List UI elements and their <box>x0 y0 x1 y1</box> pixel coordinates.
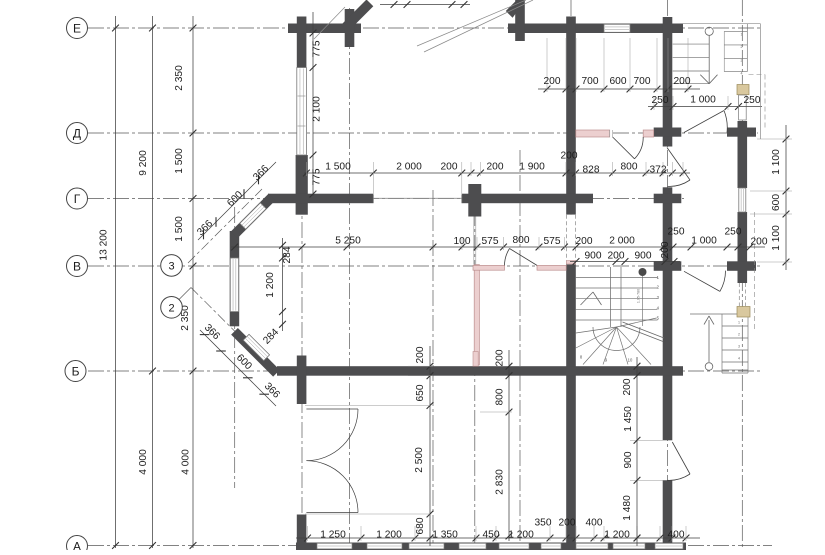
svg-text:1 500: 1 500 <box>174 216 185 242</box>
svg-text:200: 200 <box>608 250 625 261</box>
svg-text:3: 3 <box>741 59 743 63</box>
svg-text:2: 2 <box>168 302 174 314</box>
svg-text:1: 1 <box>738 321 740 325</box>
svg-text:372: 372 <box>650 165 667 176</box>
svg-text:10: 10 <box>628 358 633 363</box>
svg-text:600: 600 <box>610 76 627 87</box>
svg-text:200: 200 <box>415 346 426 363</box>
svg-text:200: 200 <box>674 76 691 87</box>
svg-text:1 000: 1 000 <box>691 236 717 247</box>
svg-text:3: 3 <box>168 260 174 272</box>
svg-text:250: 250 <box>668 227 685 238</box>
svg-text:600: 600 <box>771 194 782 211</box>
svg-text:1 100: 1 100 <box>771 149 782 175</box>
svg-text:800: 800 <box>495 388 506 405</box>
svg-text:13 200: 13 200 <box>99 229 110 260</box>
svg-text:2 000: 2 000 <box>396 162 422 173</box>
svg-text:400: 400 <box>668 530 685 541</box>
svg-text:1 250: 1 250 <box>320 530 346 541</box>
svg-text:2: 2 <box>741 45 743 49</box>
svg-text:200: 200 <box>660 241 671 258</box>
svg-text:2 500: 2 500 <box>414 447 425 473</box>
svg-text:800: 800 <box>621 162 638 173</box>
svg-text:250: 250 <box>744 95 761 106</box>
svg-text:200: 200 <box>441 162 458 173</box>
svg-text:1 000: 1 000 <box>690 95 716 106</box>
svg-text:1 480: 1 480 <box>622 495 633 521</box>
svg-text:828: 828 <box>583 165 600 176</box>
svg-text:450: 450 <box>483 530 500 541</box>
svg-text:1 900: 1 900 <box>519 162 545 173</box>
svg-text:2 100: 2 100 <box>312 96 323 122</box>
svg-text:900: 900 <box>635 250 652 261</box>
svg-text:200: 200 <box>622 378 633 395</box>
svg-text:9 200: 9 200 <box>138 150 149 176</box>
svg-text:3: 3 <box>738 345 740 349</box>
svg-text:1 450: 1 450 <box>623 406 634 432</box>
svg-text:800: 800 <box>513 235 530 246</box>
svg-text:В: В <box>73 259 81 273</box>
svg-text:Е: Е <box>73 21 81 35</box>
svg-text:350: 350 <box>535 518 552 529</box>
svg-text:900: 900 <box>585 250 602 261</box>
svg-text:Д: Д <box>73 126 81 140</box>
svg-text:680: 680 <box>415 517 426 534</box>
svg-text:А: А <box>73 539 81 550</box>
svg-text:2 830: 2 830 <box>495 469 506 495</box>
svg-text:250: 250 <box>725 227 742 238</box>
svg-text:1 200: 1 200 <box>604 530 630 541</box>
svg-text:200: 200 <box>495 349 506 366</box>
svg-text:775: 775 <box>312 40 323 57</box>
svg-text:4 000: 4 000 <box>138 449 149 475</box>
svg-text:575: 575 <box>544 236 561 247</box>
svg-text:2 350: 2 350 <box>174 65 185 91</box>
svg-text:100: 100 <box>454 236 471 247</box>
svg-text:1 500: 1 500 <box>325 162 351 173</box>
svg-text:775: 775 <box>312 168 323 185</box>
svg-text:1 100: 1 100 <box>771 225 782 251</box>
svg-text:4: 4 <box>738 357 740 361</box>
svg-text:5 250: 5 250 <box>335 236 361 247</box>
svg-text:900: 900 <box>623 451 634 468</box>
svg-text:284: 284 <box>282 246 293 263</box>
svg-text:400: 400 <box>586 518 603 529</box>
svg-text:200: 200 <box>559 518 576 529</box>
svg-text:200: 200 <box>544 76 561 87</box>
svg-text:700: 700 <box>582 76 599 87</box>
svg-text:1,05-780: 1,05-780 <box>637 289 641 303</box>
svg-text:700: 700 <box>634 76 651 87</box>
svg-text:1 350: 1 350 <box>432 530 458 541</box>
svg-text:200: 200 <box>576 236 593 247</box>
svg-text:4 000: 4 000 <box>181 449 192 475</box>
svg-text:2 000: 2 000 <box>609 236 635 247</box>
svg-text:1 200: 1 200 <box>265 272 276 298</box>
svg-text:1: 1 <box>741 33 743 37</box>
svg-text:200: 200 <box>561 151 578 162</box>
svg-text:1 200: 1 200 <box>376 530 402 541</box>
svg-text:575: 575 <box>482 236 499 247</box>
svg-text:2: 2 <box>738 333 740 337</box>
svg-text:1 500: 1 500 <box>174 148 185 174</box>
svg-text:Г: Г <box>74 192 81 206</box>
svg-text:250: 250 <box>652 95 669 106</box>
svg-text:200: 200 <box>751 237 768 248</box>
svg-text:650: 650 <box>415 384 426 401</box>
svg-text:Б: Б <box>72 364 80 378</box>
svg-text:1 200: 1 200 <box>508 530 534 541</box>
svg-text:4: 4 <box>741 72 743 76</box>
svg-text:200: 200 <box>487 162 504 173</box>
